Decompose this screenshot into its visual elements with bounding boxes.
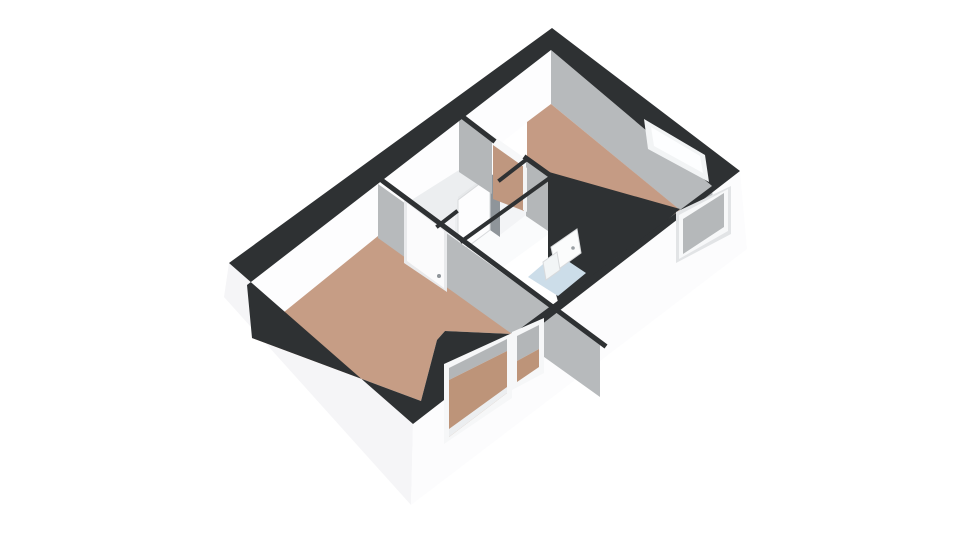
bedroom-doorway-jamb [523, 165, 527, 212]
living-room-door-handle [437, 274, 441, 278]
floorplan-canvas [0, 0, 960, 540]
floorplan-viewport[interactable] [0, 0, 960, 540]
bathroom-door-handle [571, 246, 575, 250]
